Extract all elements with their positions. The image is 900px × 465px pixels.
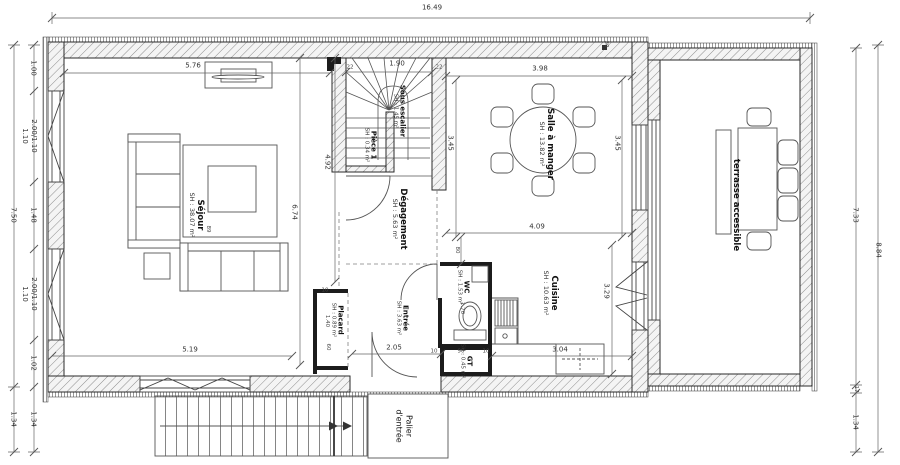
dim-sejour-width: 5.76 (185, 63, 201, 70)
dim-entree-door: 2.05 (386, 345, 402, 352)
plan-linework (0, 0, 900, 465)
dim-cuisine-width: 4.09 (529, 224, 545, 231)
dim-salle-right: 3.45 (614, 135, 621, 151)
dim-cuisine-bottom: 3.04 (552, 347, 568, 354)
room-label-wc: WC SH : 1.53 m² (456, 270, 471, 305)
dim-degagement-len: 4.92 (324, 154, 331, 170)
room-name-placard: Placard (336, 303, 344, 338)
dim-wc-offset: 80 (453, 247, 459, 254)
room-area-gt: SH : 0.45 m² (459, 344, 466, 379)
dim-right-terrace: 7.33 (852, 207, 859, 223)
dim-left-outer: 7.50 (10, 207, 17, 223)
room-area-wc: SH : 1.53 m² (456, 270, 463, 305)
dim-wall-right: 22 (436, 65, 443, 71)
dim-sejour-height: 6.74 (291, 204, 298, 220)
room-area-sous-escalier: SH : 1.45 m² (392, 85, 399, 137)
room-area-placard: SH : 0.89 m² (330, 303, 337, 338)
room-name-cuisine: Cuisine (549, 271, 559, 316)
dim-left-6: 1.34 (30, 411, 37, 427)
dim-left-outer-bottom: 1.34 (10, 411, 17, 427)
room-label-palier: Palier d'entrée (394, 408, 413, 444)
dim-left-2: 2.00/1.101.10 (20, 119, 38, 153)
room-area-degagement: SH : 5.63 m² (390, 188, 398, 249)
dim-left-3: 1.48 (30, 207, 37, 223)
room-name-salle-a-manger: Salle à manger (545, 108, 555, 180)
room-name-degagement: Dégagement (398, 188, 408, 249)
dim-sejour-note: 89 (204, 226, 210, 233)
dim-thick-b: 10 (483, 349, 490, 355)
terrace-furniture (716, 108, 798, 250)
room-name-sous-escalier: Sous escalier (398, 85, 406, 137)
room-name-palier: Palier d'entrée (394, 408, 413, 444)
room-name-gt: GT (465, 344, 473, 379)
room-label-salle-a-manger: Salle à manger SH : 13.82 m² (537, 108, 555, 180)
room-label-gt: GT SH : 0.45 m² (459, 344, 474, 379)
room-label-sejour: Séjour SH : 38.07 m² (187, 193, 205, 238)
room-label-entree: Entrée SH : 3.63 m² (395, 301, 410, 336)
room-name-entree: Entrée (401, 301, 409, 336)
room-area-piece1: SH : 0.34 m² (363, 128, 370, 163)
room-name-sejour: Séjour (195, 193, 205, 238)
dashed-lines (339, 190, 437, 368)
room-area-entree: SH : 3.63 m² (395, 301, 402, 336)
dim-sejour-bottom: 5.19 (182, 347, 198, 354)
dim-left-1: 1.00 (30, 60, 37, 76)
room-area-salle-a-manger: SH : 13.82 m² (537, 108, 545, 180)
dim-right-outer: 8.84 (875, 242, 882, 258)
room-label-placard: Placard SH : 0.89 m² (330, 303, 345, 338)
dim-salle-left: 3.45 (447, 135, 454, 151)
dim-wall-top: 30 (602, 41, 608, 48)
dim-left-4: 2.00/1.101.10 (20, 277, 38, 311)
room-area-cuisine: SH : 10.63 m² (541, 271, 549, 316)
room-area-sejour: SH : 38.07 m² (187, 193, 195, 238)
dim-thick-a: 10 (431, 349, 438, 355)
dim-placard-len: 1.40 (323, 315, 329, 327)
floor-plan: 16.49 5.76 1.90 22 22 3.98 4.09 3.04 2.0… (0, 0, 900, 465)
dim-stair-width: 1.90 (389, 61, 405, 68)
dim-cuisine-right: 3.29 (603, 283, 610, 299)
dim-right-bottom: 1.34 (852, 414, 859, 430)
dim-thick-c: 10 (322, 288, 329, 294)
room-name-wc: WC (462, 270, 470, 305)
room-name-terrasse: terrasse accessible (731, 159, 741, 251)
sejour-furniture (128, 62, 288, 291)
room-label-cuisine: Cuisine SH : 10.63 m² (541, 271, 559, 316)
room-label-piece1: Pièce 1 SH : 0.34 m² (363, 128, 378, 163)
room-label-sous-escalier: Sous escalier SH : 1.45 m² (392, 85, 407, 137)
dim-right-wall: 17 (852, 386, 858, 393)
room-name-piece1: Pièce 1 (369, 128, 377, 163)
dim-placard-depth: 60 (324, 344, 330, 351)
room-label-degagement: Dégagement SH : 5.63 m² (390, 188, 408, 249)
interior-partitions (332, 58, 446, 190)
dim-overall-width: 16.49 (422, 5, 442, 12)
dim-salle-width: 3.98 (532, 66, 548, 73)
dim-left-5: 1.02 (30, 355, 37, 371)
dim-wall-left: 22 (347, 65, 354, 71)
room-label-terrasse: terrasse accessible (731, 159, 741, 251)
